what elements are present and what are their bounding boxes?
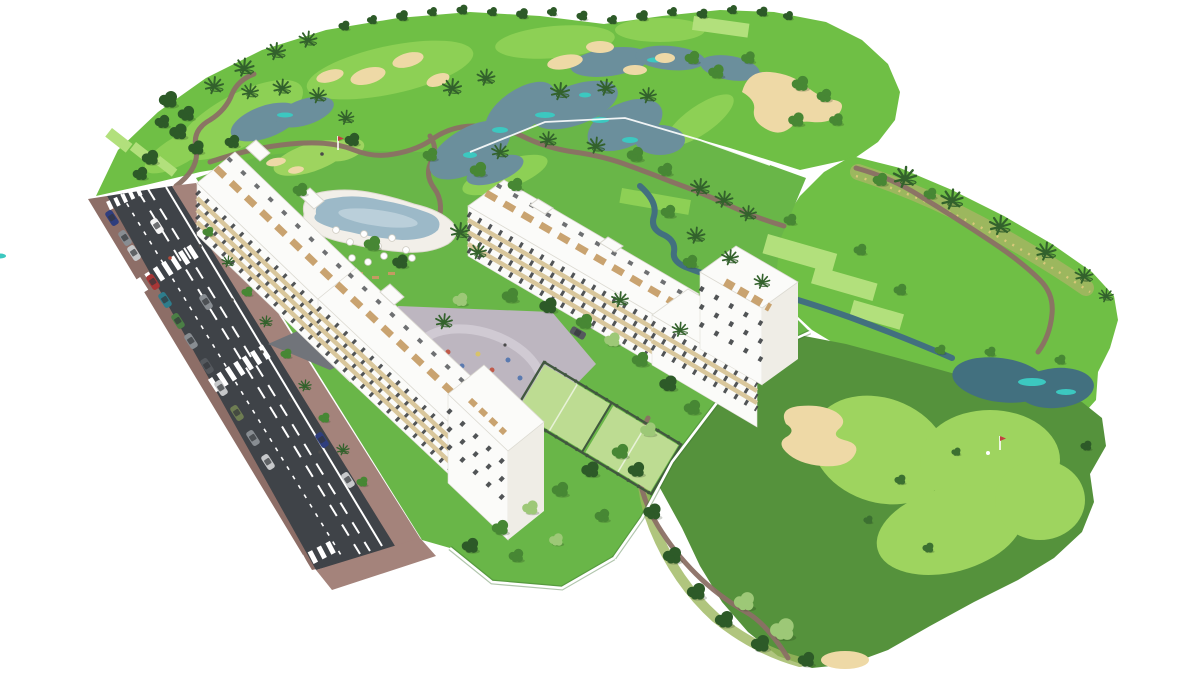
aerial-render	[0, 0, 1200, 674]
umbrella	[381, 253, 388, 260]
tree	[547, 7, 558, 17]
tree	[667, 7, 678, 17]
tree	[607, 15, 618, 25]
umbrella	[361, 231, 368, 238]
umbrella	[389, 235, 396, 242]
tree	[427, 7, 438, 17]
tree	[159, 91, 179, 109]
golf-resort-scene	[0, 0, 1200, 674]
umbrella	[365, 259, 372, 266]
umbrella	[349, 255, 356, 262]
umbrella	[409, 255, 416, 262]
umbrella	[403, 247, 410, 254]
umbrella	[333, 227, 340, 234]
golfer	[986, 451, 990, 455]
umbrella	[347, 239, 354, 246]
tree	[576, 11, 588, 22]
golfer	[320, 152, 324, 156]
